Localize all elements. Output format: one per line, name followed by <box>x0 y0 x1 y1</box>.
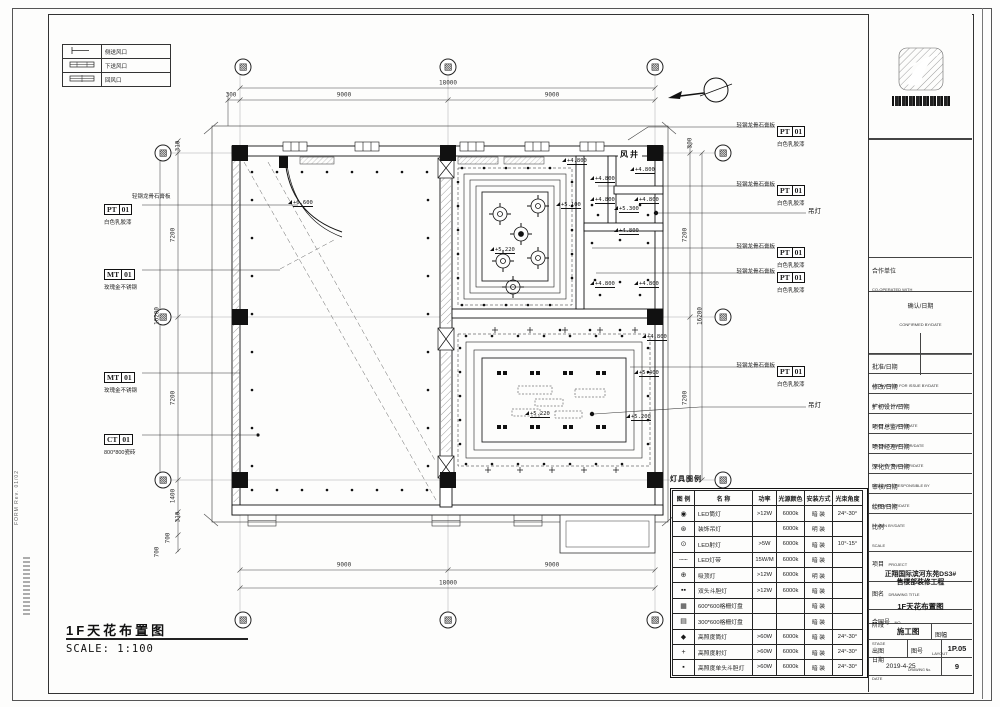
dimension-label: 700 <box>165 533 172 544</box>
fixture-mount: 暗 装 <box>805 537 833 552</box>
lighting-header-cell: 光源颜色 <box>777 491 805 506</box>
material-tag-finish: 800*800瓷砖 <box>104 448 136 456</box>
title-block-row: 扩初设计/日期CHIEF DESIGNER/DATE <box>869 394 972 414</box>
fixture-symbol: ▦ <box>673 598 695 613</box>
grid-axis-bubble: ▧ <box>440 59 457 76</box>
fixture-angle <box>833 583 863 598</box>
fixture-power: >60W <box>753 644 777 659</box>
drawing-number-row: 出图 图号 DRAWING No. 1P.05 <box>869 640 972 658</box>
fixture-mount: 暗 装 <box>805 660 833 675</box>
lighting-header-cell: 光束角度 <box>833 491 863 506</box>
material-tag: 轻钢龙骨石膏板PT01白色乳胶漆 <box>104 199 132 226</box>
fixture-color: 6000k <box>777 537 805 552</box>
title-block-row: 确认/日期CONFIRMED BY/DATE <box>869 292 972 354</box>
material-tag-finish: 白色乳胶漆 <box>777 380 805 388</box>
dimension-label: 7200 <box>682 391 689 405</box>
material-tag: MT01玫瑰金不锈钢 <box>104 367 137 394</box>
fixture-name: 300*600格栅灯盘 <box>695 614 753 629</box>
ceiling-elevation-label: +4.800 <box>562 158 587 164</box>
lighting-legend-title: 灯具图例 <box>670 474 702 484</box>
lighting-legend-row: ▪▪双头斗胆灯>12W6000k暗 装 <box>673 583 863 598</box>
lighting-header-cell: 功率 <box>753 491 777 506</box>
fixture-name: 高照度射灯 <box>695 644 753 659</box>
dimension-label: 9000 <box>545 92 559 99</box>
fixture-color: 6000k <box>777 583 805 598</box>
fixture-symbol: ┄┄ <box>673 552 695 567</box>
fixture-name: 装饰吊灯 <box>695 521 753 536</box>
ceiling-elevation-label: +4.800 <box>630 167 655 173</box>
fixture-angle <box>833 614 863 629</box>
material-tag: MT01玫瑰金不锈钢 <box>104 264 137 291</box>
material-tag-finish: 白色乳胶漆 <box>777 140 805 148</box>
drawing-sheet: FORM Rev. 01/02 侧送风口下送风口回风口 <box>0 0 1000 707</box>
fixture-color: 6000k <box>777 506 805 521</box>
date-label-en: DATE <box>872 676 882 681</box>
title-block-row: 修改/日期REVISED BY/DATE <box>869 374 972 394</box>
fixture-power <box>753 598 777 613</box>
scale-row: 比例 SCALE <box>869 514 972 552</box>
material-tag-finish: 白色乳胶漆 <box>777 199 805 207</box>
material-tag-desc: 轻钢龙骨石膏板 <box>736 267 775 275</box>
fixture-color <box>777 598 805 613</box>
drawing-title-label-zh: 图名 <box>872 592 884 598</box>
lighting-legend-row: ▪高照度单头斗胆灯>60W6000k暗 装24°-30° <box>673 660 863 675</box>
fixture-color: 6000k <box>777 660 805 675</box>
entry-steps <box>248 515 655 553</box>
material-tag: CT01800*800瓷砖 <box>104 429 136 456</box>
fixture-power: 15W/M <box>753 552 777 567</box>
dimension-label: 300 <box>687 138 694 149</box>
grid-axis-bubble: ▧ <box>647 59 664 76</box>
fixture-color: 6000k <box>777 552 805 567</box>
dimension-label: 7200 <box>682 228 689 242</box>
ceiling-elevation-label: +4.800 <box>634 281 659 287</box>
material-tag-code: PT01 <box>777 185 805 196</box>
fixture-name: 吸顶灯 <box>695 567 753 582</box>
title-block-filler <box>869 676 972 692</box>
fixture-mount: 暗 装 <box>805 552 833 567</box>
lighting-header-cell: 图 例 <box>673 491 695 506</box>
lighting-header-cell: 安装方式 <box>805 491 833 506</box>
grid-axis-bubble: ▧ <box>715 145 732 162</box>
title-block-row: 绘图/日期DRAWN BY/DATE <box>869 494 972 514</box>
lighting-legend-row: ⊙LED射灯>5W6000k暗 装10°-15° <box>673 537 863 552</box>
fixture-mount: 暗 装 <box>805 629 833 644</box>
lighting-legend-row: ⊕吸顶灯>12W6000k明 装 <box>673 567 863 582</box>
dimension-label: 18000 <box>439 580 457 587</box>
ceiling-elevation-label: +6.600 <box>288 200 313 206</box>
material-tag-code: PT01 <box>777 366 805 377</box>
fixture-power: >12W <box>753 567 777 582</box>
fixture-power <box>753 521 777 536</box>
pendant-lamp-label: 吊灯 <box>808 399 821 409</box>
fixture-symbol: ▪ <box>673 660 695 675</box>
material-tag-desc: 轻钢龙骨石膏板 <box>736 121 775 129</box>
dimension-label: 700 <box>154 547 161 558</box>
material-tag: 轻钢龙骨石膏板PT01白色乳胶漆 <box>777 180 805 207</box>
scale-label-en: SCALE <box>872 543 885 548</box>
ceiling-elevation-label: +5.220 <box>490 247 515 253</box>
plan-title-underline <box>66 638 248 640</box>
lighting-legend-row: +高照度射灯>60W6000k暗 装24°-30° <box>673 644 863 659</box>
fixture-power: >60W <box>753 660 777 675</box>
fixture-color: 6000k <box>777 567 805 582</box>
fixture-symbol: ◆ <box>673 629 695 644</box>
lighting-legend-row: ▤300*600格栅灯盘暗 装 <box>673 614 863 629</box>
lighting-legend-row: ┄┄LED灯带15W/M6000k暗 装 <box>673 552 863 567</box>
dimension-label: 7200 <box>170 391 177 405</box>
fixture-symbol: ⊛ <box>673 521 695 536</box>
fixture-mount: 暗 装 <box>805 506 833 521</box>
fixture-power: >12W <box>753 506 777 521</box>
fixture-color: 6000k <box>777 521 805 536</box>
grid-axis-bubble: ▧ <box>440 612 457 629</box>
grid-axis-bubble: ▧ <box>235 612 252 629</box>
coffer-upper <box>458 168 572 305</box>
project-label-en: PROJECT <box>888 562 907 567</box>
stage-label-zh: 阶段 <box>872 623 884 629</box>
project-label-zh: 项目 <box>872 562 884 568</box>
fixture-symbol: + <box>673 644 695 659</box>
material-tag-finish: 玫瑰金不锈钢 <box>104 283 137 291</box>
fixture-name: 600*600格栅灯盘 <box>695 598 753 613</box>
curved-wall <box>285 158 342 237</box>
title-block-blank <box>869 140 972 258</box>
material-tag-desc: 轻钢龙骨石膏板 <box>132 192 171 200</box>
material-tag-code: MT01 <box>104 269 135 280</box>
dashed-leaders <box>244 162 436 500</box>
fixture-symbol: ⊕ <box>673 567 695 582</box>
pendant-lamp-label: 吊灯 <box>808 205 821 215</box>
title-block-row: 批准/日期AUTHORIZED FOR ISSUE BY/DATE <box>869 354 972 374</box>
material-tag-desc: 轻钢龙骨石膏板 <box>736 242 775 250</box>
ceiling-elevation-label: +4.800 <box>634 197 659 203</box>
fixture-name: 高照度单头斗胆灯 <box>695 660 753 675</box>
fixture-symbol: ◉ <box>673 506 695 521</box>
material-tag-code: PT01 <box>777 272 805 283</box>
fixture-power: >60W <box>753 629 777 644</box>
air-shaft-label: 风井 <box>618 149 642 160</box>
material-tag-desc: 轻钢龙骨石膏板 <box>736 180 775 188</box>
fixture-angle <box>833 598 863 613</box>
fixture-power: >5W <box>753 537 777 552</box>
material-tag-finish: 白色乳胶漆 <box>104 218 132 226</box>
double-head-lamps <box>497 371 606 429</box>
dimension-label: 310 <box>175 141 182 152</box>
fixture-name: LED射灯 <box>695 537 753 552</box>
fixture-mount: 暗 装 <box>805 598 833 613</box>
material-tag: 轻钢龙骨石膏板PT01白色乳胶漆 <box>777 242 805 269</box>
fixture-mount: 暗 装 <box>805 583 833 598</box>
fixture-mount: 明 装 <box>805 567 833 582</box>
ceiling-elevation-label: +4.800 <box>642 334 667 340</box>
fixture-angle: 24°-30° <box>833 629 863 644</box>
drawno-label-zh: 图号 <box>911 649 923 655</box>
dimension-label: 9000 <box>337 92 351 99</box>
fixture-color <box>777 614 805 629</box>
fixture-angle: 10°-15° <box>833 537 863 552</box>
fixture-name: 高照度筒灯 <box>695 629 753 644</box>
material-tag-finish: 白色乳胶漆 <box>777 286 805 294</box>
drawing-title-label-en: DRAWING TITLE <box>888 592 919 597</box>
date-value: 2019-4-25 <box>886 663 916 670</box>
fixture-symbol: ▤ <box>673 614 695 629</box>
fixture-name: LED筒灯 <box>695 506 753 521</box>
material-tag-finish: 玫瑰金不锈钢 <box>104 386 137 394</box>
fixture-name: 双头斗胆灯 <box>695 583 753 598</box>
lighting-legend-row: ◉LED筒灯>12W6000k暗 装24°-30° <box>673 506 863 521</box>
stage-value: 施工图 <box>885 626 931 637</box>
material-tag-code: CT01 <box>104 434 133 445</box>
fixture-mount: 暗 装 <box>805 614 833 629</box>
grid-axis-bubble: ▧ <box>715 472 732 489</box>
wall-hatch <box>233 160 451 502</box>
title-block-row: 合作单位CO-OPERATED WITH <box>869 258 972 292</box>
north-arrow <box>668 78 732 102</box>
fixture-power <box>753 614 777 629</box>
grid-axis-bubble: ▧ <box>647 612 664 629</box>
lighting-header-row: 图 例名 称功率光源颜色安装方式光束角度 <box>673 491 863 506</box>
material-tag: 轻钢龙骨石膏板PT01白色乳胶漆 <box>777 121 805 148</box>
material-tag-code: PT01 <box>777 247 805 258</box>
dimension-label: 16200 <box>697 307 704 325</box>
title-block: 合作单位CO-OPERATED WITH确认/日期CONFIRMED BY/DA… <box>868 14 972 692</box>
ceiling-elevation-label: +5.400 <box>634 370 659 376</box>
sheet-number: 9 <box>955 662 959 671</box>
project-row: 项目 PROJECT 正翔国际滨河东苑DS3# 售楼部装修工程 <box>869 552 972 582</box>
dimension-label: 300 <box>226 92 237 99</box>
fixture-angle <box>833 552 863 567</box>
linear-diffusers <box>300 157 544 164</box>
material-tag-code: PT01 <box>777 126 805 137</box>
drawing-title-row: 图名 DRAWING TITLE 1F天花布置图 <box>869 582 972 610</box>
lighting-legend-table: 图 例名 称功率光源颜色安装方式光束角度◉LED筒灯>12W6000k暗 装24… <box>672 490 863 676</box>
plan-title: 1F天花布置图 <box>66 620 167 639</box>
company-logo-box <box>869 14 972 140</box>
lighting-header-cell: 名 称 <box>695 491 753 506</box>
grid-axis-bubble: ▧ <box>155 472 172 489</box>
fixture-angle: 24°-30° <box>833 506 863 521</box>
lighting-legend-row: ◆高照度筒灯>60W6000k暗 装24°-30° <box>673 629 863 644</box>
coffer-lower <box>458 334 650 466</box>
fixture-angle <box>833 521 863 536</box>
ceiling-elevation-label: +5.200 <box>626 414 651 420</box>
spotlight-marks <box>485 327 638 473</box>
fixture-symbol: ▪▪ <box>673 583 695 598</box>
dimension-label: 18000 <box>439 80 457 87</box>
date-label-zh: 日期 <box>872 658 884 664</box>
material-tag-code: PT01 <box>104 204 132 215</box>
material-tag: 轻钢龙骨石膏板PT01白色乳胶漆 <box>777 267 805 294</box>
ceiling-elevation-label: +5.300 <box>614 206 639 212</box>
grid-axis-bubble: ▧ <box>715 309 732 326</box>
fixture-mount: 明 装 <box>805 521 833 536</box>
company-name-text <box>892 96 950 106</box>
ceiling-elevation-label: +4.800 <box>590 176 615 182</box>
fixture-mount: 暗 装 <box>805 644 833 659</box>
fixture-angle: 24°-30° <box>833 660 863 675</box>
drawing-number: 1P.05 <box>948 644 967 653</box>
plan-scale: SCALE: 1:100 <box>66 643 154 655</box>
dimension-label: 9000 <box>337 562 351 569</box>
ceiling-elevation-label: +5.220 <box>525 411 550 417</box>
title-block-row: 项目总监/日期PROJECT DIRECTOR/DATE <box>869 414 972 434</box>
title-block-row: 深化负责/日期DRAWINGS RESPONSIBLE BY <box>869 454 972 474</box>
fixture-name: LED灯带 <box>695 552 753 567</box>
ceiling-elevation-label: +5.100 <box>556 202 581 208</box>
company-logo <box>897 46 945 92</box>
lighting-legend-row: ⊛装饰吊灯6000k明 装 <box>673 521 863 536</box>
dimension-label: 9000 <box>545 562 559 569</box>
fixture-color: 6000k <box>777 629 805 644</box>
fixture-color: 6000k <box>777 644 805 659</box>
date-row: 日期 DATE 2019-4-25 9 <box>869 658 972 676</box>
scale-label-zh: 比例 <box>872 525 884 531</box>
ceiling-elevation-label: +4.800 <box>590 197 615 203</box>
fixture-symbol: ⊙ <box>673 537 695 552</box>
dimension-label: 7200 <box>170 228 177 242</box>
material-tag-code: MT01 <box>104 372 135 383</box>
material-tag-desc: 轻钢龙骨石膏板 <box>736 361 775 369</box>
material-tag: 轻钢龙骨石膏板PT01白色乳胶漆 <box>777 361 805 388</box>
fixture-angle <box>833 567 863 582</box>
grid-axis-bubble: ▧ <box>155 145 172 162</box>
dimension-label: 1400 <box>170 489 177 503</box>
ceiling-elevation-label: +4.800 <box>614 228 639 234</box>
lighting-legend-row: ▦600*600格栅灯盘暗 装 <box>673 598 863 613</box>
dimension-label: 310 <box>175 512 182 523</box>
title-block-row: 审核/日期CHECKED BY/DATE <box>869 474 972 494</box>
dimension-label: 16200 <box>154 307 161 325</box>
grid-axis-bubble: ▧ <box>235 59 252 76</box>
ceiling-elevation-label: +4.800 <box>590 281 615 287</box>
fixture-angle: 24°-30° <box>833 644 863 659</box>
layout-label-zh: 图幅 <box>935 633 947 639</box>
title-block-row: 项目经理/日期PROJECT MANAGER/DATE <box>869 434 972 454</box>
fixture-power: >12W <box>753 583 777 598</box>
